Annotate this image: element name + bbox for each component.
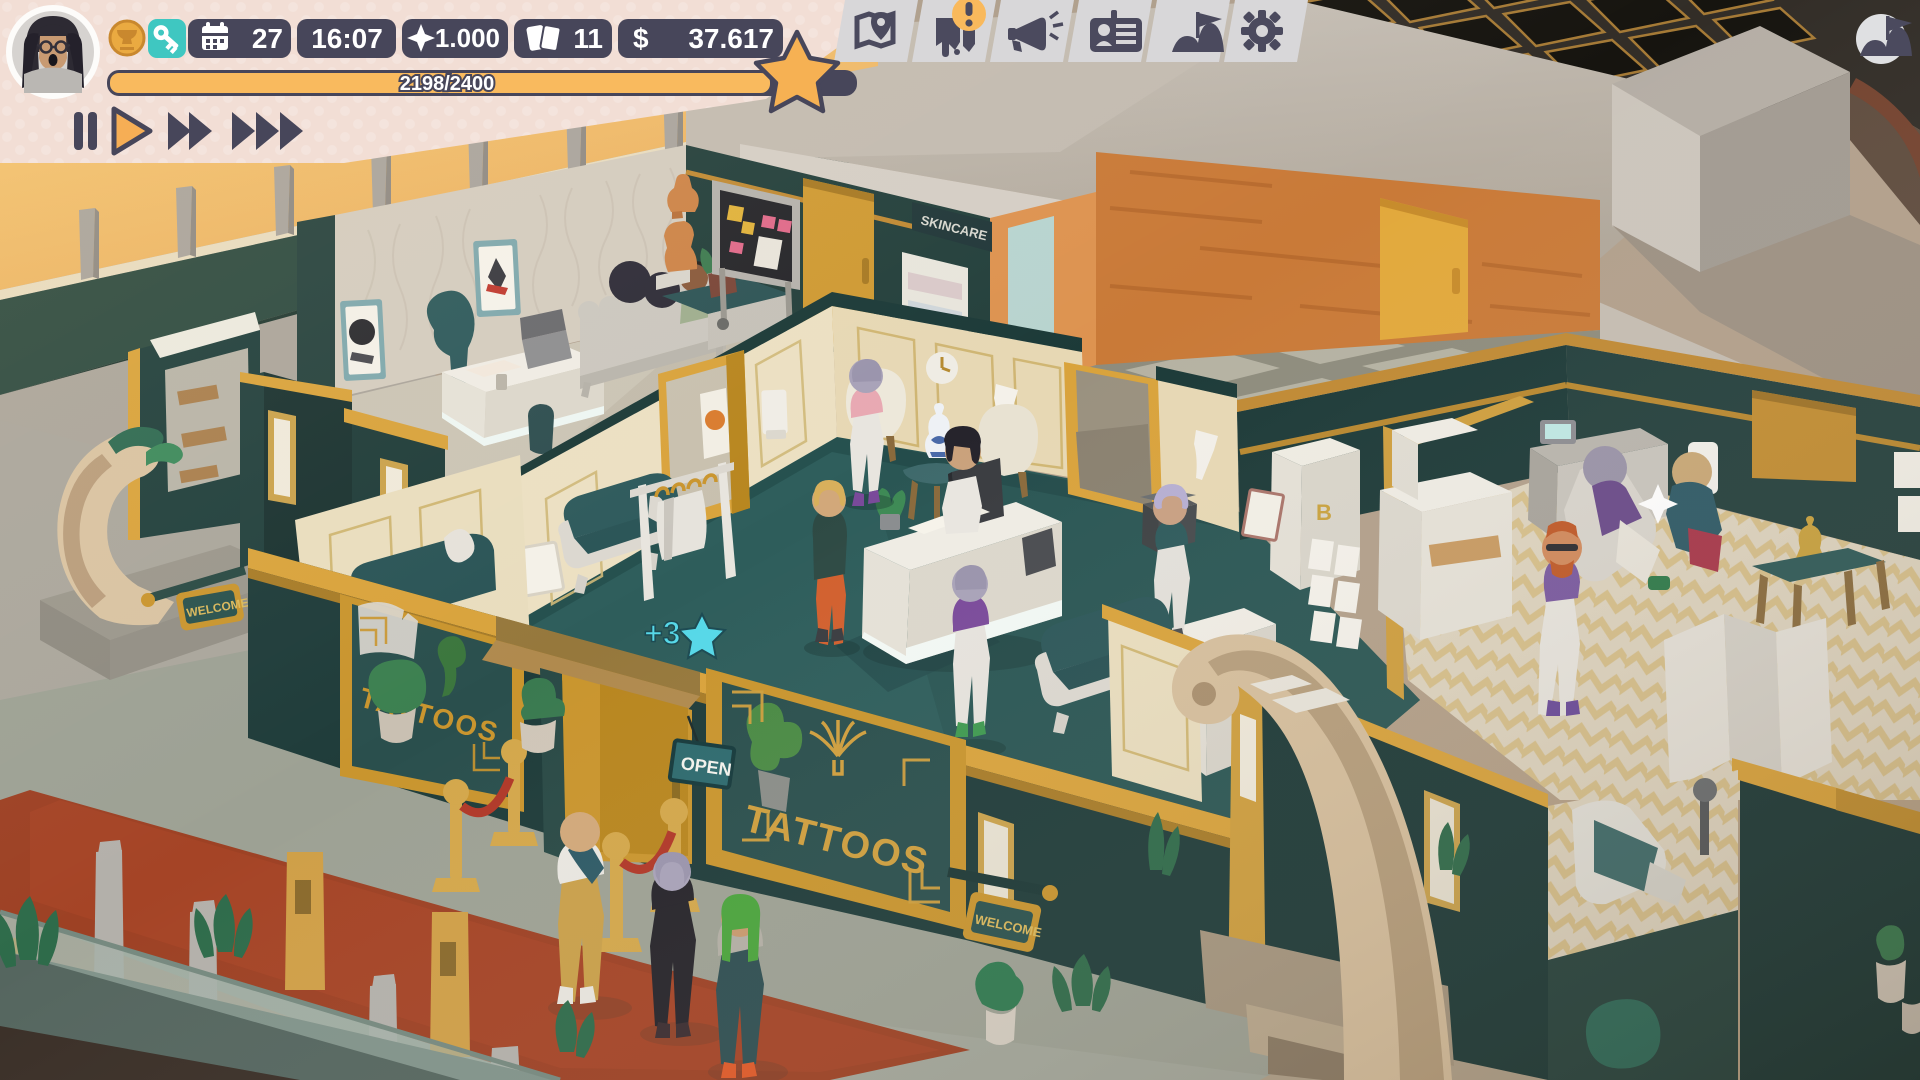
svg-text:11: 11 xyxy=(573,23,603,54)
svg-text:$: $ xyxy=(633,23,649,54)
svg-text:2198/2400: 2198/2400 xyxy=(400,73,495,95)
svg-text:27: 27 xyxy=(252,23,283,54)
svg-text:37.617: 37.617 xyxy=(688,23,774,54)
svg-text:1.000: 1.000 xyxy=(435,23,500,53)
svg-text:16:07: 16:07 xyxy=(311,23,383,54)
